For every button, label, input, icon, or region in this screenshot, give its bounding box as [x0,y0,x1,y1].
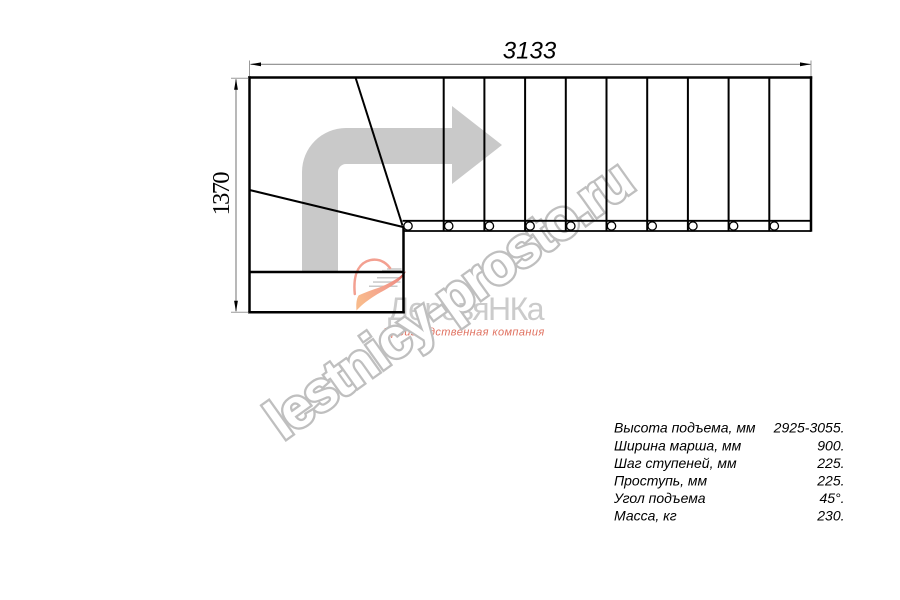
svg-text:225.: 225. [816,473,844,489]
svg-text:Масса, кг: Масса, кг [614,508,677,524]
svg-text:45°.: 45°. [819,490,844,506]
svg-text:Угол подъема: Угол подъема [613,490,706,506]
svg-text:225.: 225. [816,455,844,471]
svg-text:Ширина марша, мм: Ширина марша, мм [614,437,742,453]
svg-text:3133: 3133 [503,38,557,65]
svg-text:230.: 230. [816,508,844,524]
svg-text:Шаг ступеней, мм: Шаг ступеней, мм [614,455,737,471]
svg-text:Проступь, мм: Проступь, мм [614,473,708,489]
svg-text:900.: 900. [817,437,844,453]
svg-text:2925-3055.: 2925-3055. [773,420,845,436]
svg-text:Высота подъема, мм: Высота подъема, мм [614,420,756,436]
svg-text:1370: 1370 [208,172,235,216]
